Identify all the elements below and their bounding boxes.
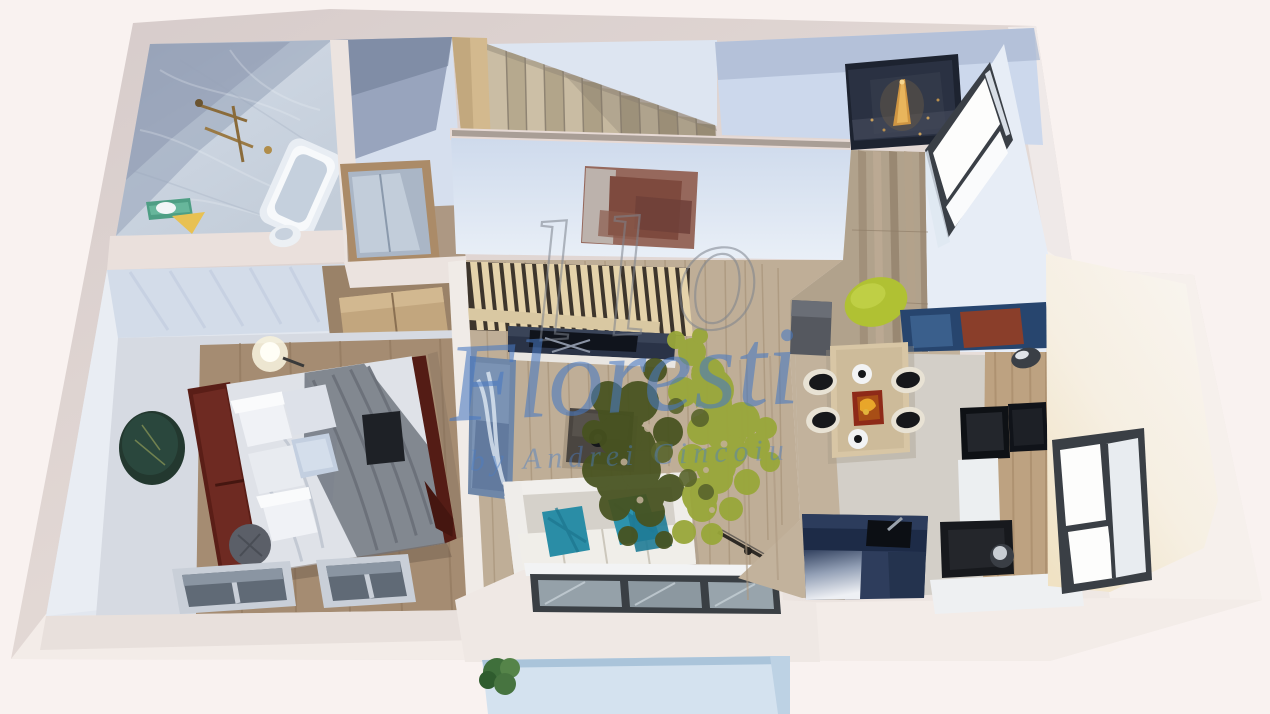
svg-text:Floresti: Floresti: [444, 304, 802, 446]
